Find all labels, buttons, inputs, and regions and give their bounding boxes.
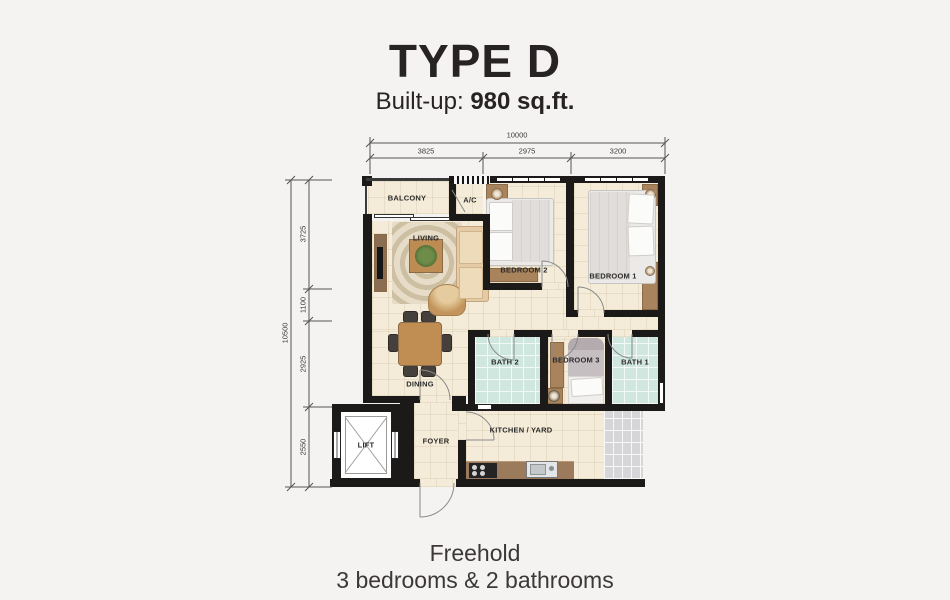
bedroom1-window [584,176,648,183]
corridor-floor [483,290,566,330]
room-label-dining: DINING [406,380,433,389]
wall [468,330,475,411]
corridor-floor-2 [566,317,658,330]
dim-left-seg3: 2925 [299,356,308,373]
dining-chair [441,334,452,352]
configuration-text: 3 bedrooms & 2 bathrooms [0,567,950,594]
wall [363,396,420,403]
bath2-floor [475,337,540,404]
room-label-bedroom3: BEDROOM 3 [552,356,599,365]
balcony-parapet-left [365,186,367,216]
bedroom2-window [496,176,560,183]
bedroom3-doorway [552,330,578,337]
wall [466,404,658,411]
dining-table [398,322,442,366]
bedroom1-blanket [590,192,630,280]
dim-top-total: 10000 [507,131,528,140]
lift-door [391,431,399,459]
lift-door [333,431,341,459]
dim-top-seg1: 3825 [418,147,435,156]
wall [449,214,490,221]
room-label-balcony: BALCONY [388,194,426,203]
page-title: TYPE D [0,34,950,88]
wall [363,214,372,403]
room-label-bath1: BATH 1 [621,358,649,367]
bedroom2-blanket [512,200,550,262]
bedroom2-doorway [542,283,566,290]
wall [632,330,658,337]
burner-icon [480,471,485,476]
wall [400,403,414,487]
faucet-icon [549,466,554,471]
bedroom2-pillow [489,232,513,261]
bedroom3-pillow [570,377,603,397]
dim-top-seg3: 3200 [610,147,627,156]
burner-icon [480,465,485,470]
yard-floor [604,411,643,479]
dim-left-seg2: 1100 [299,297,308,313]
wall [604,310,658,317]
entrance-doorway [420,479,456,487]
floor-plan-page: TYPE D Built-up: 980 sq.ft. Freehold 3 b… [0,0,950,600]
room-label-foyer: FOYER [423,437,450,446]
room-label-ac: A/C [463,196,477,205]
room-label-bedroom2: BEDROOM 2 [500,266,547,275]
bath2-window [477,404,492,410]
lamp-icon [491,188,503,200]
wall [483,221,490,290]
bedroom2-pillow [489,202,513,231]
wall [483,283,542,290]
bath1-window [659,382,664,404]
tv-icon [377,247,383,279]
dim-left-seg1: 3725 [299,226,308,243]
room-label-bedroom1: BEDROOM 1 [589,272,636,281]
wall [540,330,548,411]
dim-left-total: 10500 [281,323,290,344]
sofa-cushion [459,231,483,264]
dining-chair [421,365,436,377]
bedroom1-doorway [578,310,604,317]
balcony-parapet [366,178,452,181]
balcony-sliding-door [410,217,450,221]
ac-louvre-icon [452,176,490,184]
lamp-icon [645,266,655,276]
burner-icon [472,471,477,476]
bedroom1-pillow [627,226,654,257]
builtup-label: Built-up: [376,88,464,115]
tenure-text: Freehold [0,540,950,567]
plant-icon [415,245,437,267]
wall [605,330,612,411]
wall [566,310,578,317]
wall [456,479,645,487]
wall [566,182,574,310]
room-label-bath2: BATH 2 [491,358,519,367]
bath1-floor [612,337,658,404]
wall [578,330,608,337]
bedroom1-pillow [627,193,655,224]
wall [452,396,466,411]
room-label-lift: LIFT [358,441,375,450]
bath2-doorway [490,330,514,337]
bedroom3-wardrobe [550,342,564,388]
room-label-living: LIVING [413,234,439,243]
builtup-line: Built-up: 980 sq.ft. [0,88,950,116]
balcony-sliding-door [374,214,414,218]
foyer-doorway [420,396,452,403]
sink-basin-icon [530,464,546,475]
sofa-cushion [459,267,483,299]
burner-icon [472,465,477,470]
kitchen-doorway [458,411,466,440]
wall [658,176,665,411]
room-label-kitchen-yard: KITCHEN / YARD [490,426,553,435]
dim-top-seg2: 2975 [519,147,536,156]
dim-left-seg4: 2550 [299,439,308,456]
stool-cushion-icon [548,390,560,402]
builtup-value: 980 sq.ft. [470,88,574,115]
dining-chair [403,365,418,377]
